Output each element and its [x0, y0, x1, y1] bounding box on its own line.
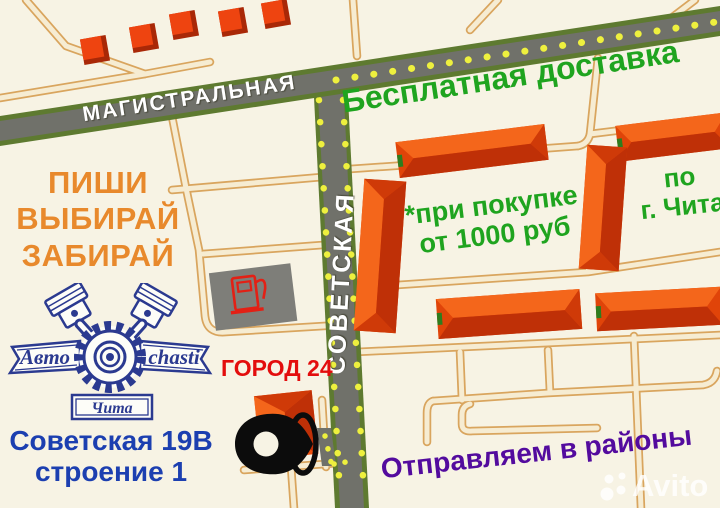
small-buildings — [80, 0, 291, 65]
slogan-line1: ПИШИ — [4, 165, 192, 201]
landmark-label: ГОРОД 24 — [221, 356, 336, 382]
piston-icon-left — [45, 283, 97, 331]
address-line2: строение 1 — [2, 457, 220, 488]
piston-icon-right — [126, 283, 178, 331]
promo-map-ad: МАГИСТРАЛЬНАЯ СОВЕТСКАЯ Бесплатная доста… — [0, 0, 720, 508]
logo-name-left: Авто — [18, 345, 70, 369]
delivery-city-note: по г. Чита — [623, 157, 720, 226]
gas-station — [209, 263, 297, 331]
slogan-line2: ВЫБИРАЙ — [4, 201, 192, 237]
avito-logo-dots — [596, 467, 630, 505]
slogan-line3: ЗАБИРАЙ — [4, 238, 192, 274]
logo-name-right: chasti — [148, 345, 200, 369]
logo-city-label: Чита — [91, 400, 132, 417]
slogan: ПИШИ ВЫБИРАЙ ЗАБИРАЙ — [4, 165, 192, 274]
gear-icon — [79, 326, 141, 388]
address-line1: Советская 19В — [2, 426, 220, 457]
avito-watermark: Avito — [596, 463, 720, 508]
avito-watermark-text: Avito — [632, 468, 708, 504]
store-address: Советская 19В строение 1 — [2, 426, 220, 488]
store-logo: Авто chasti Чита — [2, 283, 220, 426]
logo-city-plate: Чита — [72, 395, 152, 419]
